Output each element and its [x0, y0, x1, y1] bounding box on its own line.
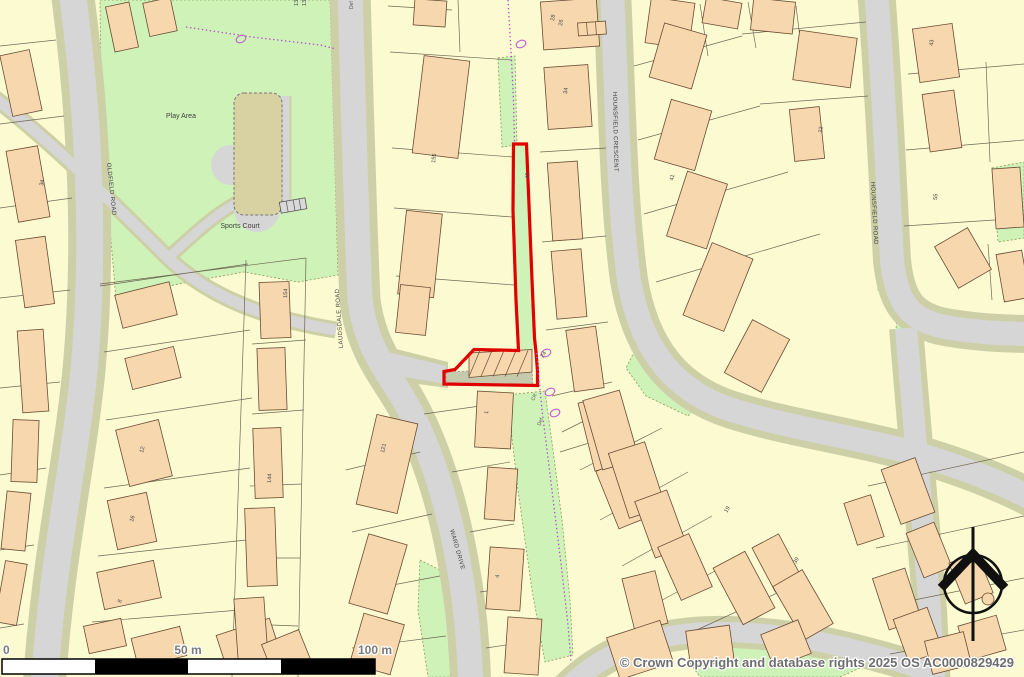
building-footprint [793, 30, 857, 88]
house-number-label: 130 [294, 0, 300, 6]
copyright-attribution: © Crown Copyright and database rights 20… [620, 655, 1014, 670]
building-footprint [486, 547, 524, 611]
building-footprint [396, 285, 431, 336]
map-canvas[interactable]: OLDFIELD ROADLAUDSDALE ROADWARD DRIVEHOU… [0, 0, 1024, 677]
house-number-label: 34 [39, 179, 46, 186]
boundary-annotation-def: Def [349, 1, 355, 9]
house-number-label: 43 [929, 39, 936, 46]
house-number-label: 4 [495, 575, 501, 579]
play-area-label: Play Area [166, 113, 196, 120]
scale-bar-segment-black-2 [281, 659, 375, 674]
house-number-label: 155 [431, 153, 438, 163]
building-footprint [253, 428, 283, 499]
building-footprint [551, 249, 587, 319]
building-footprint [750, 0, 795, 34]
scale-hundred-label: 100 m [358, 643, 392, 657]
building-footprint [257, 348, 287, 411]
map-tank-feature [982, 593, 994, 605]
sports-court-label: Sports Court [220, 223, 259, 230]
building-footprint [992, 167, 1024, 229]
scale-zero-label: 0 [3, 643, 10, 657]
building-footprint [245, 508, 278, 587]
house-number-label: 144 [267, 474, 273, 484]
house-number-label: 28 [550, 14, 557, 21]
house-number-label: 26 [558, 19, 565, 26]
scale-bar-segment-black-1 [95, 659, 188, 674]
building-footprint [484, 467, 518, 521]
building-footprint [17, 329, 49, 413]
building-footprint [912, 23, 959, 82]
building-footprint [789, 107, 824, 162]
building-footprint [547, 161, 582, 241]
building-footprint [504, 617, 542, 675]
house-number-label: 34 [563, 87, 570, 94]
building-footprint [11, 420, 39, 483]
house-number-label: 1 [484, 411, 490, 415]
outbuilding-row [578, 21, 607, 36]
house-number-label: 22 [818, 126, 825, 133]
building-footprint [475, 391, 514, 449]
house-number-label: 134 [302, 0, 308, 6]
scale-fifty-label: 50 m [174, 643, 201, 657]
building-footprint [544, 65, 592, 130]
building-footprint [413, 0, 447, 27]
map-viewport[interactable]: OLDFIELD ROADLAUDSDALE ROADWARD DRIVEHOU… [0, 0, 1024, 677]
house-number-label: 154 [283, 289, 289, 299]
house-number-label: 42 [525, 173, 531, 180]
building-footprint [234, 597, 268, 661]
sports-court-surface [234, 93, 282, 215]
house-number-label: 55 [933, 193, 940, 200]
